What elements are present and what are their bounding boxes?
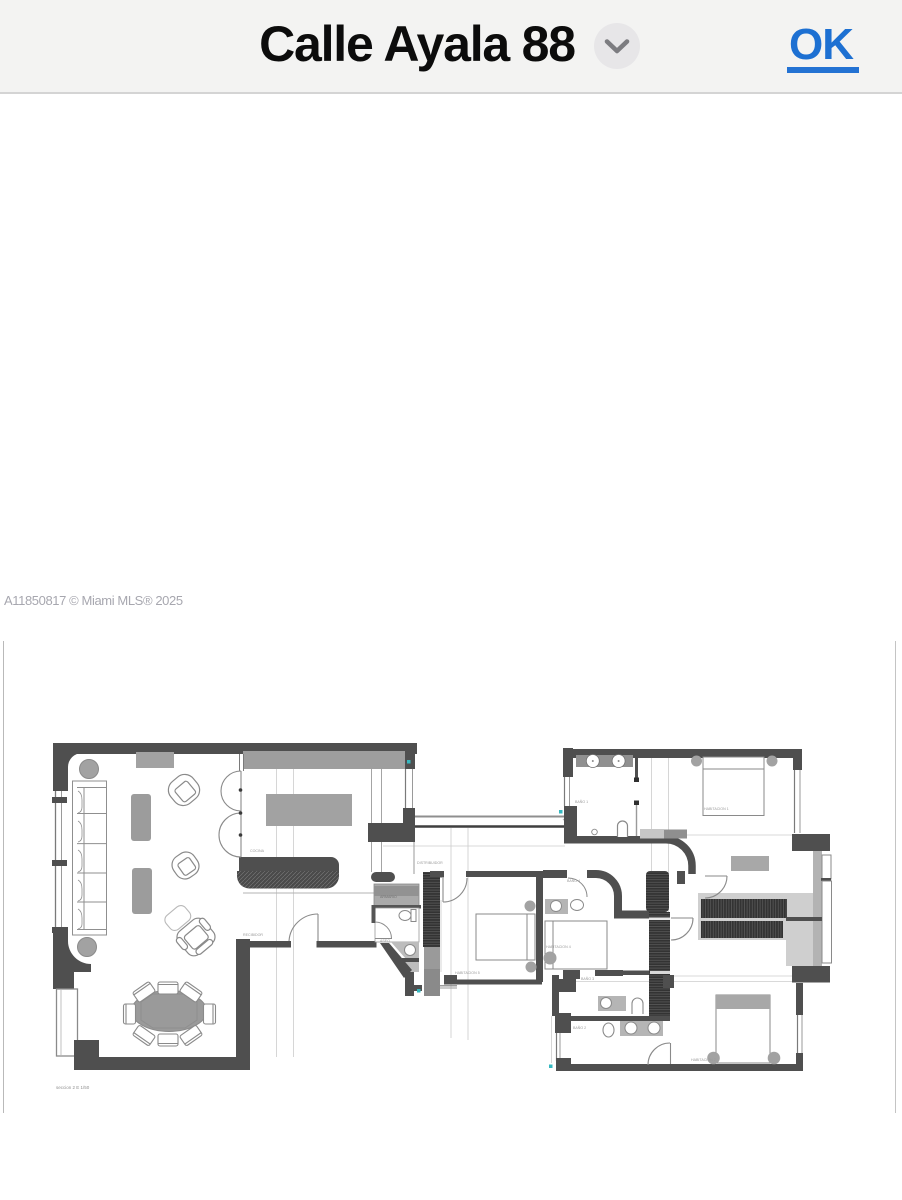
svg-text:BAÑO 3: BAÑO 3 [581, 976, 594, 981]
svg-text:seccion 2 E 1/50: seccion 2 E 1/50 [56, 1085, 90, 1090]
svg-text:COCINA: COCINA [250, 849, 265, 853]
svg-text:BAÑO 2: BAÑO 2 [573, 1025, 586, 1030]
svg-text:HABITACION 5: HABITACION 5 [455, 971, 480, 975]
svg-text:HABITACION 1: HABITACION 1 [704, 807, 729, 811]
svg-text:DISTRIBUIDOR: DISTRIBUIDOR [417, 861, 443, 865]
svg-text:ASEO: ASEO [380, 939, 390, 943]
svg-text:ARMARIO: ARMARIO [380, 895, 397, 899]
svg-text:RECIBIDOR: RECIBIDOR [243, 933, 263, 937]
svg-text:HABITACION 2: HABITACION 2 [691, 1058, 716, 1062]
svg-text:HABITACION 4: HABITACION 4 [546, 945, 571, 949]
svg-text:BAÑO 1: BAÑO 1 [575, 799, 588, 804]
svg-text:BAÑO 4: BAÑO 4 [567, 878, 580, 883]
